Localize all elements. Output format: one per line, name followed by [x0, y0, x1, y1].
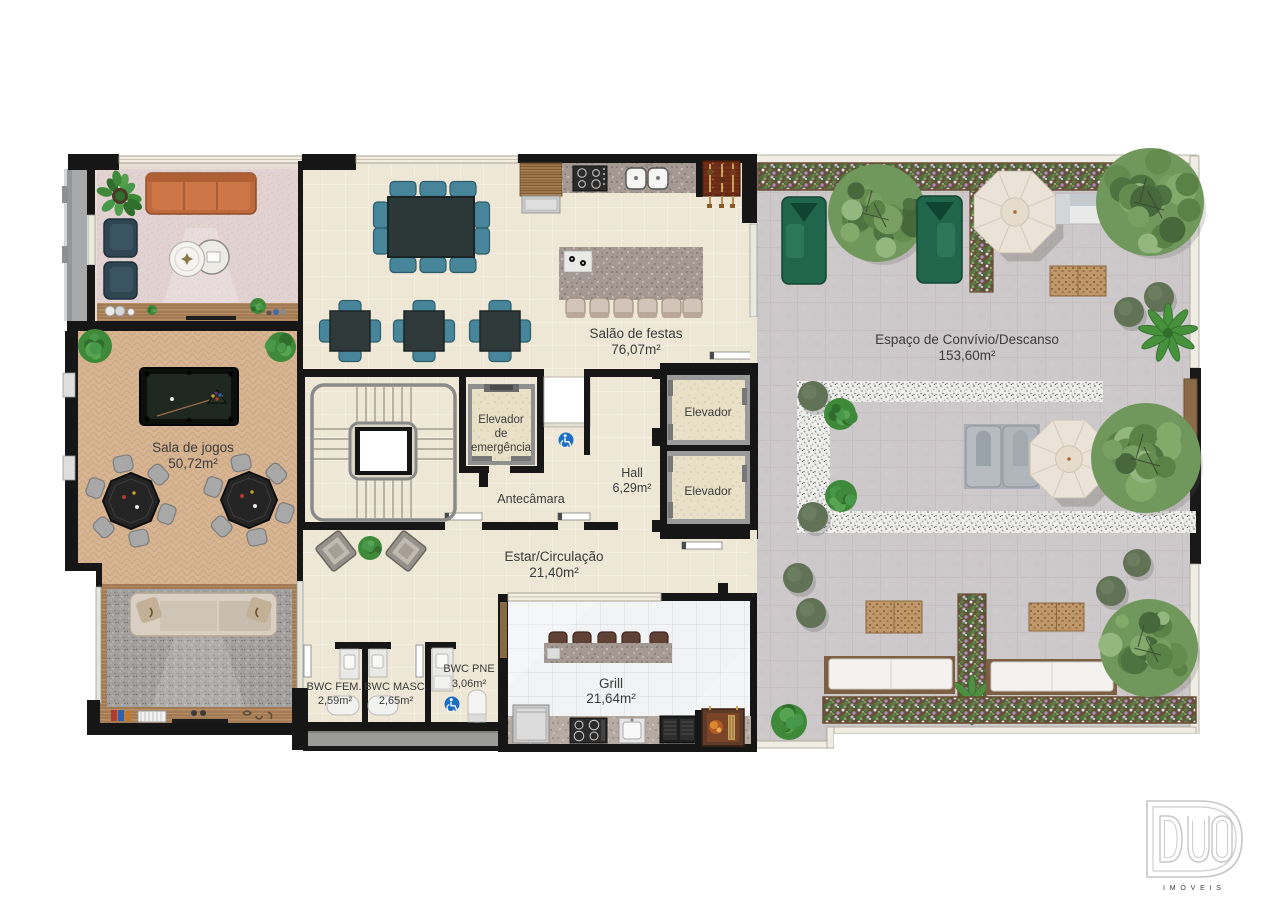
svg-text:Sala de jogos: Sala de jogos	[152, 440, 234, 455]
svg-text:6,29m²: 6,29m²	[613, 481, 652, 495]
svg-text:IMÓVEIS: IMÓVEIS	[1163, 883, 1226, 892]
svg-text:3,06m²: 3,06m²	[452, 678, 487, 690]
svg-text:BWC MASC.: BWC MASC.	[364, 681, 428, 693]
svg-text:Grill: Grill	[599, 676, 623, 691]
svg-text:Hall: Hall	[621, 466, 643, 480]
svg-text:Salão de festas: Salão de festas	[589, 326, 682, 341]
svg-text:BWC PNE: BWC PNE	[443, 663, 494, 675]
svg-text:Estar/Circulação: Estar/Circulação	[504, 549, 603, 564]
svg-text:Espaço de Convívio/Descanso: Espaço de Convívio/Descanso	[875, 332, 1059, 347]
svg-text:de: de	[495, 428, 508, 440]
svg-text:2,59m²: 2,59m²	[318, 695, 353, 707]
svg-text:Elevador: Elevador	[478, 414, 524, 426]
svg-text:21,40m²: 21,40m²	[529, 565, 579, 580]
svg-text:2,65m²: 2,65m²	[379, 695, 414, 707]
svg-text:Elevador: Elevador	[684, 405, 731, 419]
svg-text:21,64m²: 21,64m²	[586, 691, 636, 706]
svg-text:76,07m²: 76,07m²	[611, 342, 661, 357]
svg-text:50,72m²: 50,72m²	[168, 456, 218, 471]
svg-text:Antecâmara: Antecâmara	[497, 492, 564, 506]
svg-text:Elevador: Elevador	[684, 484, 731, 498]
svg-text:emergência: emergência	[471, 442, 532, 454]
svg-text:153,60m²: 153,60m²	[938, 348, 996, 363]
svg-text:BWC FEM.: BWC FEM.	[307, 681, 362, 693]
